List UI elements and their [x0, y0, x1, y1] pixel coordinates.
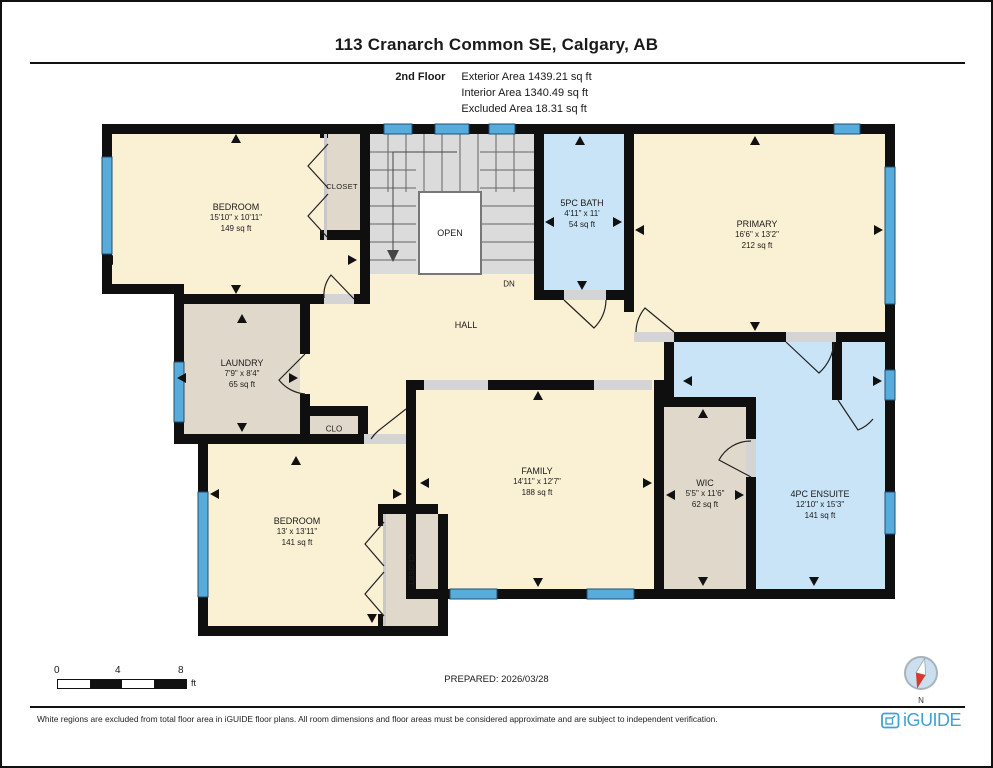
- room-label-wic: WIC 5'5" x 11'6" 62 sq ft: [686, 477, 725, 511]
- room-label-ensuite: 4PC ENSUITE 12'10" x 15'3" 141 sq ft: [790, 488, 849, 522]
- room-label-bedroom1: BEDROOM 15'10" x 10'11" 149 sq ft: [210, 201, 262, 235]
- prepared-date: PREPARED: 2026/03/28: [2, 674, 991, 685]
- brand-name: iGUIDE: [903, 710, 961, 731]
- room-label-laundry: LAUNDRY 7'9" x 8'4" 65 sq ft: [221, 357, 264, 391]
- disclaimer: White regions are excluded from total fl…: [37, 714, 807, 724]
- room-label-bath: 5PC BATH 4'11" x 11' 54 sq ft: [560, 197, 603, 231]
- floor-plan: BEDROOM 15'10" x 10'11" 149 sq ft CLOSET…: [2, 2, 993, 768]
- room-label-closet1: CLOSET: [326, 182, 358, 192]
- compass-icon: [896, 652, 946, 696]
- brand-logo: iGUIDE: [881, 710, 961, 731]
- room-label-closet2: CLOSET: [406, 554, 416, 586]
- room-label-hall: HALL: [455, 319, 478, 331]
- room-label-family: FAMILY 14'11" x 12'7" 188 sq ft: [513, 465, 561, 499]
- room-label-primary: PRIMARY 16'6" x 13'2" 212 sq ft: [735, 218, 779, 252]
- room-label-bedroom2: BEDROOM 13' x 13'11" 141 sq ft: [274, 515, 321, 549]
- iguide-icon: [881, 712, 900, 729]
- room-label-dn: DN: [503, 280, 515, 291]
- bottom-divider: [30, 706, 965, 708]
- room-label-clo: CLO: [326, 425, 342, 436]
- room-label-open: OPEN: [437, 227, 463, 239]
- compass: N: [896, 652, 946, 704]
- floor-plan-drawing: [2, 2, 993, 768]
- compass-north-label: N: [896, 696, 946, 705]
- floor-plan-page: 113 Cranarch Common SE, Calgary, AB 2nd …: [0, 0, 993, 768]
